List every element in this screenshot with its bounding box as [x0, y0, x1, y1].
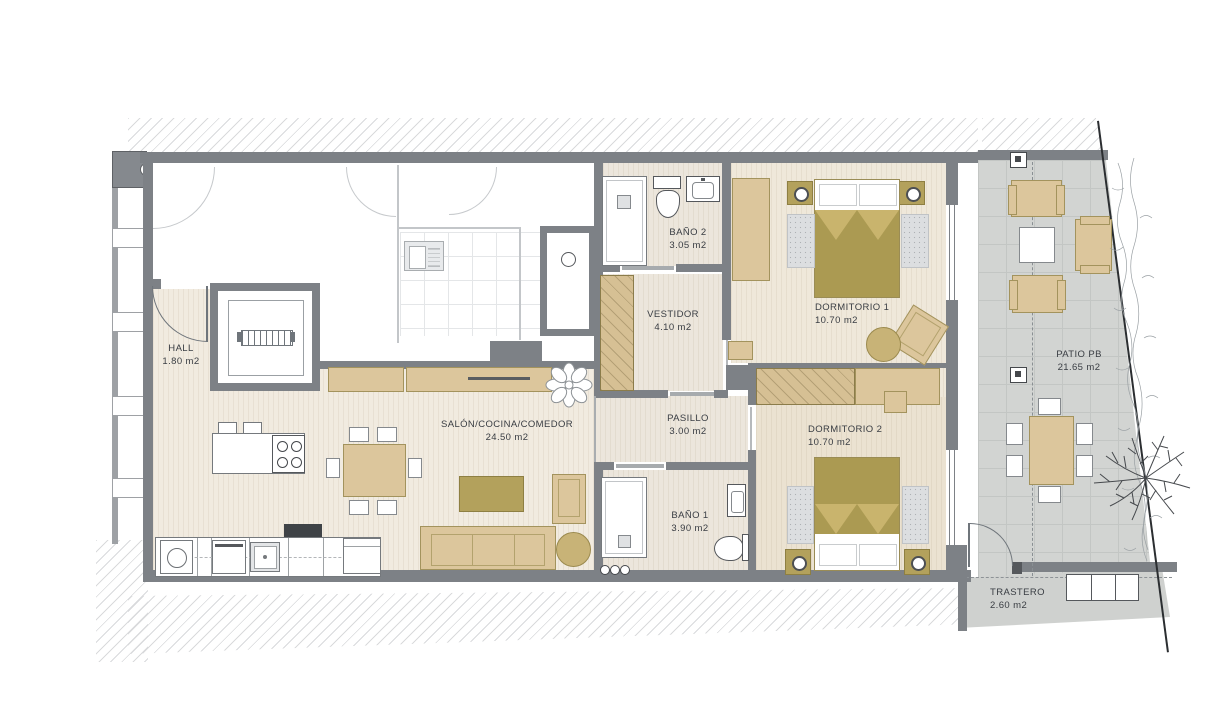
room-label-bano2: BAÑO 2 3.05 m2 [669, 226, 706, 252]
bano1-door-leaf [616, 464, 664, 468]
nightstand-icon [904, 549, 930, 575]
dining-chair [408, 458, 422, 478]
corner-cabinet [728, 341, 753, 360]
wall-top [140, 152, 978, 163]
patio-armchair-icon [1012, 275, 1063, 313]
neighbor-wall [397, 227, 521, 229]
neighbor-door-arc [153, 167, 215, 229]
shower-tray-icon [601, 477, 647, 558]
wardrobe-icon [600, 275, 634, 391]
room-area: 2.60 m2 [990, 599, 1045, 612]
window-dorm2 [946, 450, 958, 545]
toilet-tank-icon [742, 534, 749, 561]
wall-dorm2-left [748, 368, 756, 405]
wall-bano2-south [676, 264, 728, 272]
sideboard-handle [468, 377, 530, 380]
armchair-icon [552, 474, 586, 524]
dining-chair [349, 427, 369, 442]
flower-decor-icon [546, 363, 592, 407]
vestidor-door-leaf [670, 392, 714, 396]
bed-icon [814, 457, 900, 571]
washing-machine-icon [160, 540, 193, 574]
pouf-icon [866, 327, 901, 362]
desk-icon [732, 178, 770, 281]
room-name: TRASTERO [990, 586, 1045, 599]
drain-marker-icon [1010, 152, 1027, 168]
patio-side-table [1019, 227, 1055, 263]
room-area: 4.10 m2 [647, 321, 699, 334]
room-name: BAÑO 1 [671, 509, 708, 522]
nightstand-icon [899, 181, 925, 205]
room-label-dormitorio2: DORMITORIO 2 10.70 m2 [808, 423, 882, 449]
drain-marker-icon [1010, 367, 1027, 383]
wall-patio-top [978, 150, 1108, 160]
sofa-icon [420, 526, 556, 570]
room-label-salon: SALÓN/COCINA/COMEDOR 24.50 m2 [441, 418, 573, 444]
room-label-vestidor: VESTIDOR 4.10 m2 [647, 308, 699, 334]
room-area: 3.90 m2 [671, 522, 708, 535]
duct-circle-icon [561, 252, 576, 267]
left-slab [112, 478, 147, 498]
wardrobe-icon [756, 368, 855, 405]
storage-cabinet [1066, 574, 1139, 601]
duct-shaft [540, 226, 596, 336]
neighbor-wall [519, 227, 521, 340]
sideboard [328, 367, 404, 392]
wall-vestidor-south [594, 390, 668, 398]
patio-chair [1038, 398, 1061, 415]
stool-icon [218, 422, 237, 434]
sink-icon [250, 542, 280, 572]
window-dorm1 [946, 205, 958, 300]
oven-icon [212, 540, 246, 574]
dining-chair [326, 458, 340, 478]
room-label-dormitorio1: DORMITORIO 1 10.70 m2 [815, 301, 889, 327]
wall-bano1-north [594, 462, 614, 470]
room-area: 3.00 m2 [667, 425, 709, 438]
wall-vestidor-south [714, 390, 728, 398]
fridge-icon [343, 538, 381, 574]
elevator-cab-icon [228, 300, 304, 376]
room-label-pasillo: PASILLO 3.00 m2 [667, 412, 709, 438]
hatch-band-top [128, 118, 978, 154]
neighbor-sink-icon [404, 241, 444, 271]
patio-dashed-axis [1032, 162, 1033, 576]
utility-circles-icon [600, 565, 630, 574]
patio-armchair-icon [1011, 180, 1062, 217]
vanity-sink-icon [727, 484, 746, 517]
left-slab [112, 312, 147, 332]
dining-chair [377, 427, 397, 442]
hatch-band-left-bottom [96, 540, 148, 662]
room-area: 10.70 m2 [815, 314, 889, 327]
room-name: PATIO PB [1056, 348, 1102, 361]
wall-corridor-right [722, 163, 731, 340]
rug-icon [787, 214, 815, 268]
room-name: BAÑO 2 [669, 226, 706, 239]
floor-plan: HALL 1.80 m2 SALÓN/COCINA/COMEDOR 24.50 … [0, 0, 1212, 720]
patio-chair [1006, 423, 1023, 445]
neighbor-door-arc [346, 167, 396, 217]
pouf-icon [556, 532, 591, 567]
bed-icon [814, 179, 900, 298]
room-area: 24.50 m2 [441, 431, 573, 444]
room-name: SALÓN/COCINA/COMEDOR [441, 418, 573, 431]
room-area: 3.05 m2 [669, 239, 706, 252]
rug-icon [902, 486, 929, 544]
toilet-icon [653, 176, 681, 189]
elevator-shaft [210, 283, 320, 391]
dining-chair [377, 500, 397, 515]
rug-icon [901, 214, 929, 268]
pasillo-opening-line [594, 396, 596, 462]
wall-trastero-left [958, 545, 967, 631]
left-slab [112, 228, 147, 248]
dining-chair [349, 500, 369, 515]
shower-tray-icon [602, 176, 647, 266]
neighbor-door-arc [449, 167, 497, 215]
wall-trastero-endcap [1012, 562, 1022, 574]
room-label-hall: HALL 1.80 m2 [162, 342, 199, 368]
dorm2-door-leaf [750, 407, 752, 450]
hatch-band-top-right [982, 118, 1104, 152]
hatch-band-bottom [128, 588, 971, 660]
cooktop-icon [272, 435, 305, 473]
room-name: DORMITORIO 2 [808, 423, 882, 436]
patio-dining-table [1029, 416, 1074, 485]
room-area: 1.80 m2 [162, 355, 199, 368]
room-area: 21.65 m2 [1056, 361, 1102, 374]
left-slab [112, 396, 147, 416]
tree-icon [1086, 426, 1194, 526]
nightstand-icon [785, 549, 811, 575]
neighbor-wall [397, 165, 399, 343]
room-name: DORMITORIO 1 [815, 301, 889, 314]
rug-icon [787, 486, 814, 544]
bano2-door-leaf [622, 266, 674, 270]
stool-icon [243, 422, 262, 434]
room-name: PASILLO [667, 412, 709, 425]
patio-chair [1006, 455, 1023, 477]
room-name: VESTIDOR [647, 308, 699, 321]
wall-left [143, 163, 153, 582]
nightstand-icon [787, 181, 813, 205]
toilet-bowl-icon [714, 536, 744, 561]
room-area: 10.70 m2 [808, 436, 882, 449]
room-label-bano1: BAÑO 1 3.90 m2 [671, 509, 708, 535]
wall-chunk [490, 341, 542, 369]
room-label-trastero: TRASTERO 2.60 m2 [990, 586, 1045, 612]
coffee-table [459, 476, 524, 512]
patio-chair [1038, 486, 1061, 503]
room-name: HALL [162, 342, 199, 355]
room-label-patio: PATIO PB 21.65 m2 [1056, 348, 1102, 374]
wall-bano1-north [666, 462, 756, 470]
vanity-sink-icon [686, 176, 720, 202]
dining-table [343, 444, 406, 497]
desk-chair [884, 391, 907, 413]
